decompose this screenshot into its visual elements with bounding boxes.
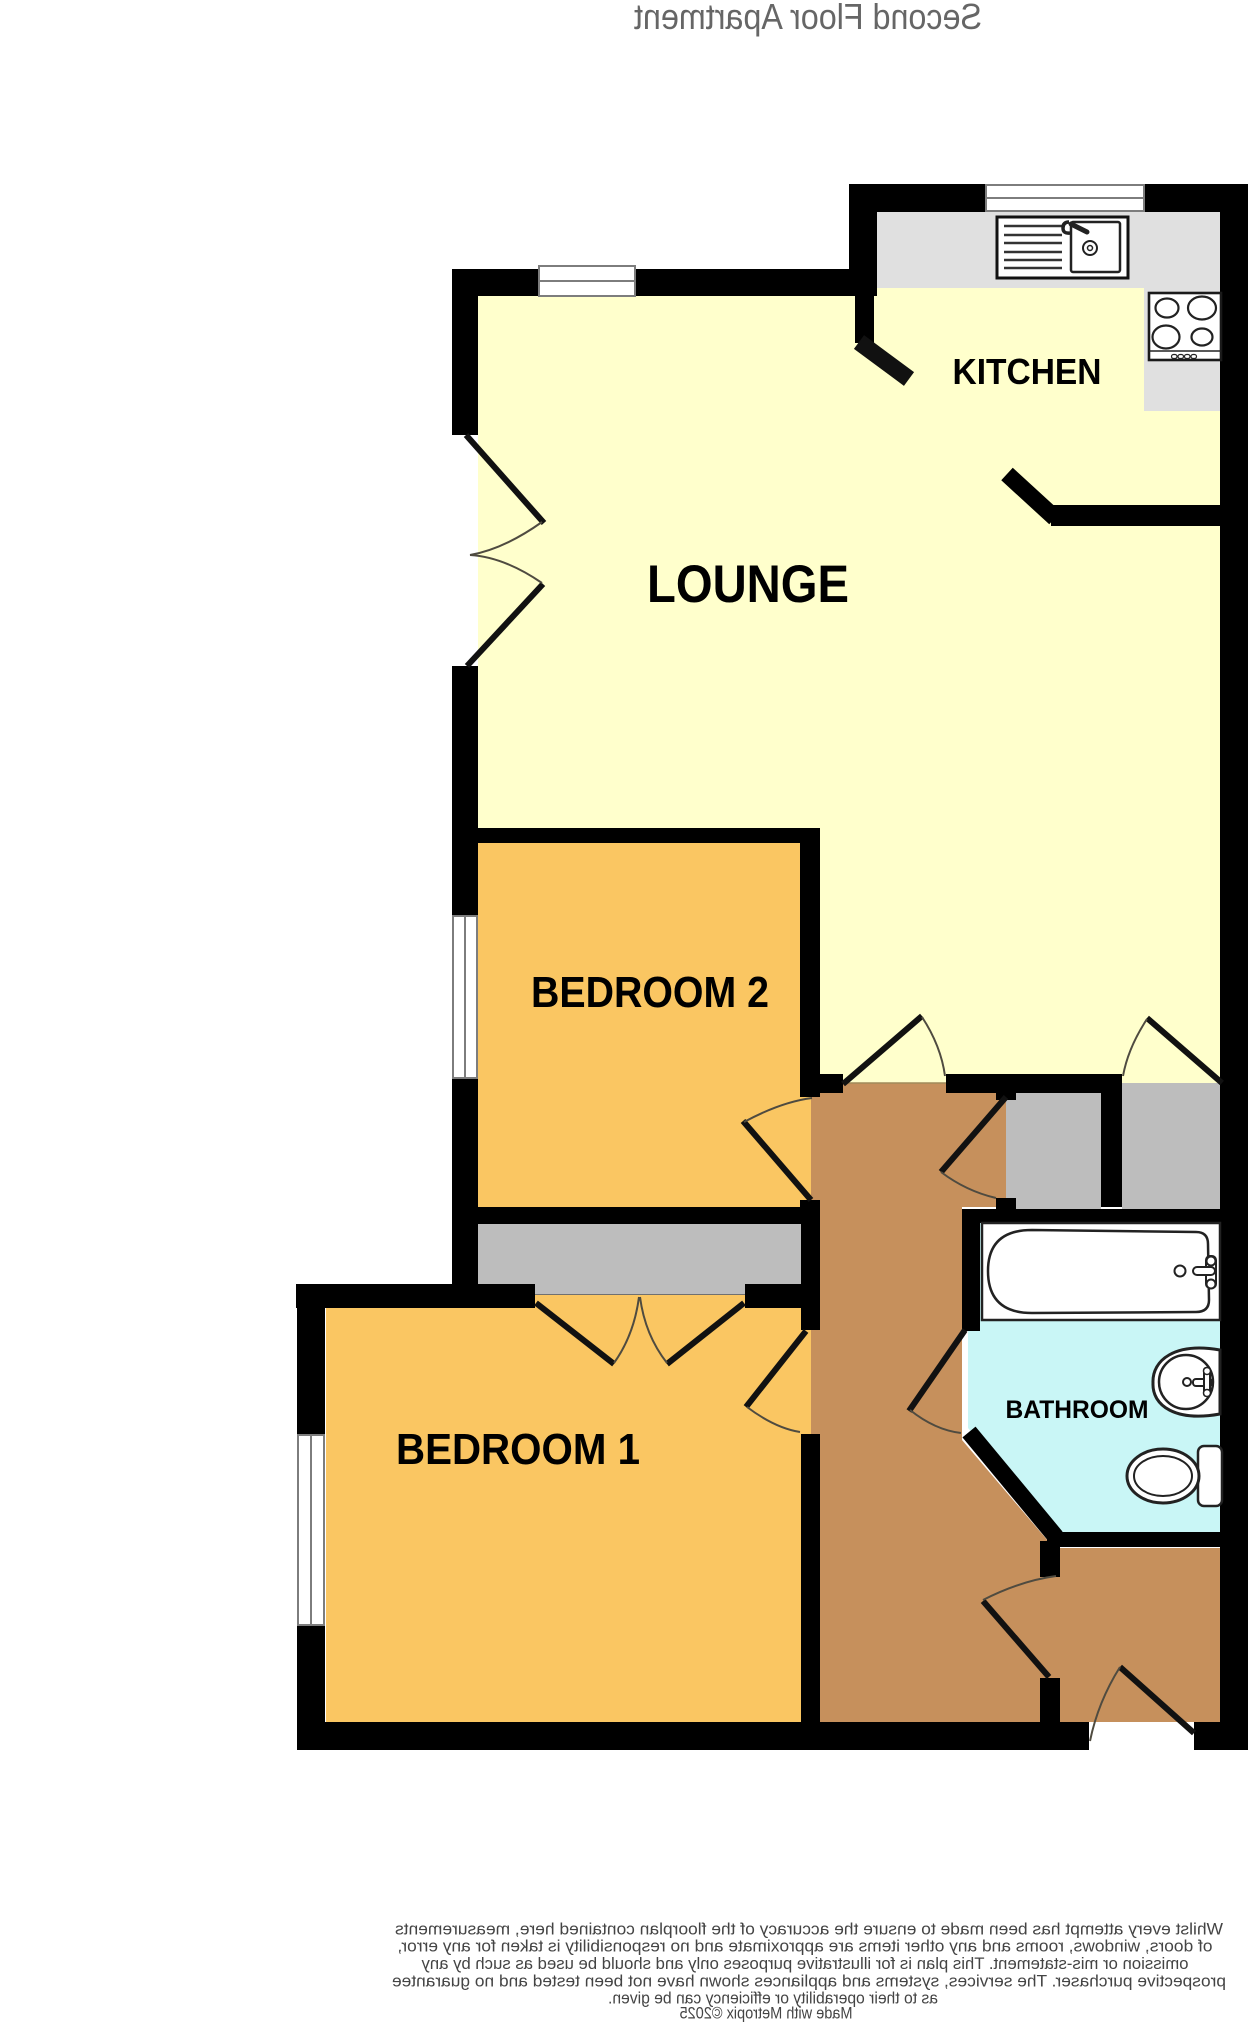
svg-text:LOUNGE: LOUNGE — [647, 555, 849, 614]
svg-text:Made with Metropix ©2025: Made with Metropix ©2025 — [680, 2005, 853, 2023]
svg-text:BATHROOM: BATHROOM — [1006, 1396, 1149, 1424]
svg-text:KITCHEN: KITCHEN — [953, 351, 1102, 392]
svg-text:BEDROOM 1: BEDROOM 1 — [396, 1425, 640, 1474]
svg-text:of doors, windows, rooms and a: of doors, windows, rooms and any other i… — [397, 1938, 1212, 1956]
svg-text:BEDROOM 2: BEDROOM 2 — [531, 968, 769, 1017]
svg-text:Whilst every attempt has been: Whilst every attempt has been made to en… — [395, 1921, 1223, 1939]
svg-text:prospective purchaser. The ser: prospective purchaser. The services, sys… — [392, 1973, 1226, 1991]
svg-text:omission or mis-statement. Thi: omission or mis-statement. This plan is … — [421, 1955, 1189, 1973]
svg-text:Second Floor Apartment: Second Floor Apartment — [634, 0, 982, 37]
